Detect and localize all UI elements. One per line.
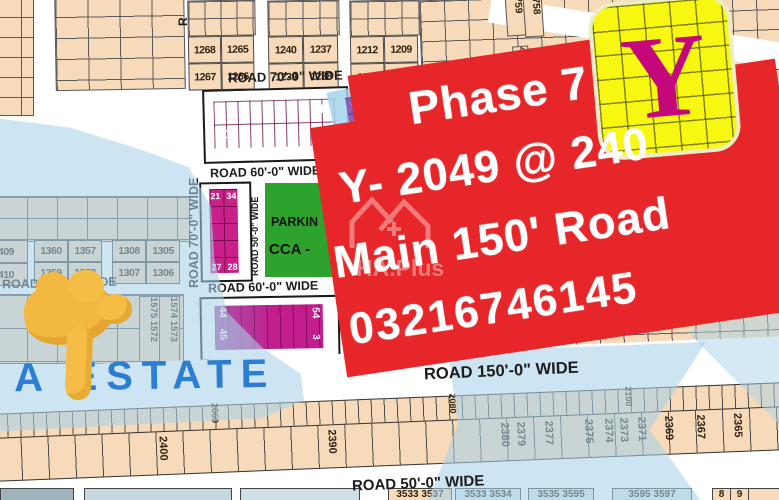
plot-number-cell: 9 [730, 488, 749, 500]
top-empty-plot-grid [54, 0, 186, 91]
plot-number: 34 [226, 191, 236, 201]
road-label-vertical-partial: R [176, 4, 190, 26]
road-label-60-lower: ROAD 60'-0" WIDE [208, 279, 319, 296]
far-left-plot-grid [0, 0, 34, 116]
plot-cell [0, 488, 74, 500]
plot-number: 2400 [157, 436, 170, 461]
road-label-60-upper: ROAD 60'-0" WIDE [210, 164, 321, 181]
road-label-70: ROAD 70'-0" WIDE [228, 68, 343, 86]
plot-number: 1267 [188, 63, 221, 91]
plot-number: 2390 [325, 429, 338, 454]
plot-number: 758 [523, 0, 545, 38]
plot-number: 1268 [188, 36, 221, 64]
plot-number: 2410 [0, 443, 1, 468]
plot-number: 2369 [662, 416, 675, 441]
plot-number: 54 [310, 307, 321, 318]
plot-map: 1268 1265 1267 1266 1240 1237 1239 1238 … [0, 0, 779, 500]
plot-number: 9 [737, 489, 743, 500]
pointing-hand-icon [22, 272, 132, 402]
plot-number: 21 [210, 191, 220, 201]
plot-number: 1237 [303, 35, 338, 63]
plot-number-cell: 8 [712, 488, 731, 500]
parking-label: PARKIN [271, 215, 318, 229]
plot-cell [748, 488, 779, 500]
watermark: HA.Plus [346, 192, 456, 282]
watermark-text: HA.Plus [356, 255, 456, 282]
plot-number: 1240 [268, 36, 303, 64]
plot-number: 20 [217, 127, 231, 141]
plot-number: 1265 [221, 35, 254, 63]
plot-cell [240, 488, 360, 500]
cca-label: CCA - [269, 241, 310, 258]
plot-number: 2365 [731, 413, 744, 438]
plot-number: 1212 [350, 36, 384, 64]
plot-number: 28 [228, 262, 238, 272]
watermark-logo-icon [346, 192, 456, 250]
plot-number: 2367 [694, 414, 707, 439]
plot-number: 1 [216, 104, 223, 118]
plot-cell [84, 488, 232, 500]
plot-number: 3 [310, 334, 321, 340]
plot-number: 8 [719, 489, 725, 500]
road-label-50-vertical: ROAD 50'-0" WIDE [250, 184, 260, 276]
plot-number: 1209 [384, 35, 418, 63]
